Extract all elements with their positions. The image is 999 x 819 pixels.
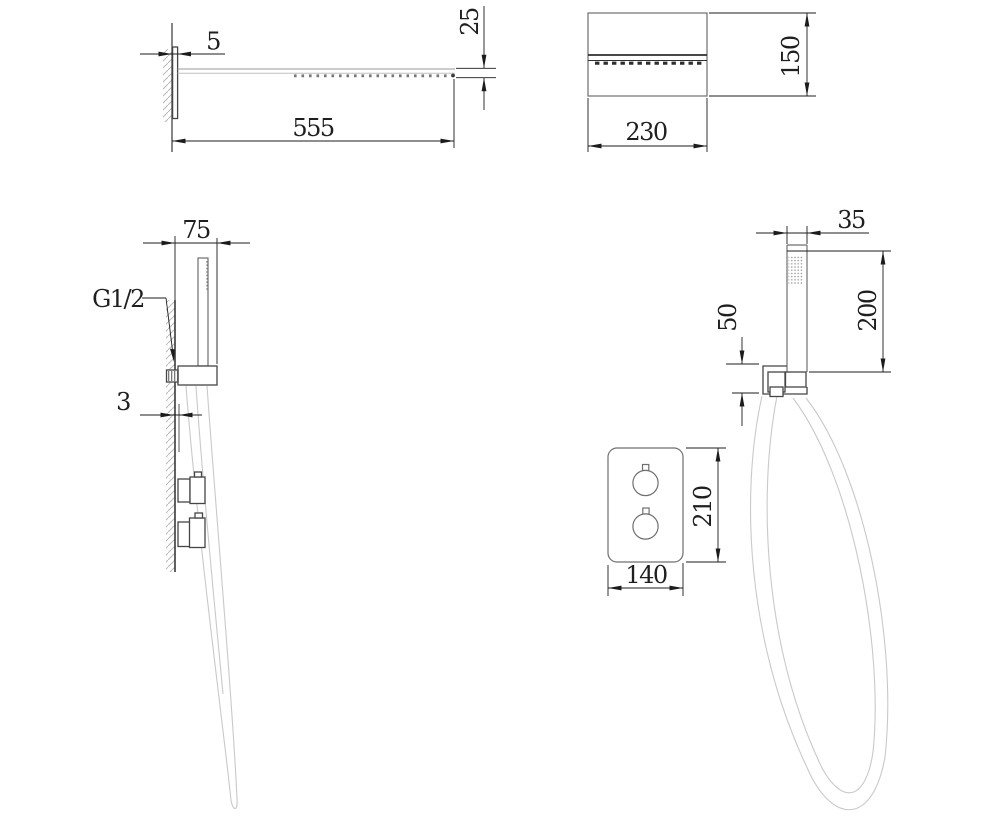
view-valve-plate-front xyxy=(608,448,683,562)
hose-loop-outer xyxy=(751,396,888,810)
dim-head-depth: 25 xyxy=(456,6,496,110)
wall-hatch xyxy=(163,49,172,122)
dim-label-150: 150 xyxy=(777,36,805,78)
hose-loop-inner xyxy=(767,396,875,793)
dim-label-555: 555 xyxy=(292,114,334,142)
wall-hatch xyxy=(166,300,175,572)
handle2-notch xyxy=(195,513,203,518)
dim-label-50: 50 xyxy=(714,304,742,332)
dim-label-210: 210 xyxy=(689,486,717,528)
knob-top-notch xyxy=(643,465,649,471)
dim-label-35: 35 xyxy=(837,206,865,234)
thread-label-g12: G1/2 xyxy=(92,285,144,313)
handshower-wand-side xyxy=(198,258,208,366)
dim-label-75: 75 xyxy=(182,216,210,244)
view-hand-shower-side xyxy=(166,236,237,809)
head-end-cap xyxy=(451,74,455,78)
thread-callout: G1/2 xyxy=(92,285,175,362)
dim-label-5: 5 xyxy=(206,28,220,56)
valve-knob-top xyxy=(633,470,658,495)
dim-bracket-offset: 75 xyxy=(143,216,250,364)
valve-knob-bottom xyxy=(633,514,658,539)
dim-wand-width: 35 xyxy=(756,206,869,244)
dim-label-230: 230 xyxy=(625,118,667,146)
dim-label-200: 200 xyxy=(854,290,882,332)
wall-bracket xyxy=(178,366,217,385)
wall-plate xyxy=(173,47,178,119)
handle2-base xyxy=(178,522,190,547)
handle1-base xyxy=(178,479,190,502)
dim-outlet-offset: 50 xyxy=(714,304,759,426)
hose-loop-side xyxy=(186,386,237,809)
dim-head-width: 230 xyxy=(588,98,707,152)
dim-plate-gap: 3 xyxy=(116,388,202,417)
dim-head-height: 150 xyxy=(709,13,816,96)
dim-label-25: 25 xyxy=(456,8,484,36)
knob-bottom-notch xyxy=(643,508,649,514)
dim-wall-plate-thickness: 5 xyxy=(140,28,225,57)
view-rain-shower-front xyxy=(588,13,707,96)
drawing-canvas: 5 25 555 230 150 xyxy=(0,0,999,819)
valve-handles-side xyxy=(178,472,205,548)
wand-inlet-block xyxy=(786,372,807,387)
dim-plate-height: 210 xyxy=(686,448,726,562)
handle1-knob xyxy=(190,477,205,504)
dim-label-140: 140 xyxy=(625,561,667,589)
handle2-knob xyxy=(190,518,206,548)
technical-drawing: 5 25 555 230 150 xyxy=(0,0,999,819)
hose-nut xyxy=(770,387,783,397)
handle1-notch xyxy=(195,472,202,477)
dim-head-length: 555 xyxy=(172,79,454,148)
dim-label-3: 3 xyxy=(116,388,130,416)
spray-face-dots xyxy=(789,257,804,286)
dim-plate-width: 140 xyxy=(608,561,683,596)
